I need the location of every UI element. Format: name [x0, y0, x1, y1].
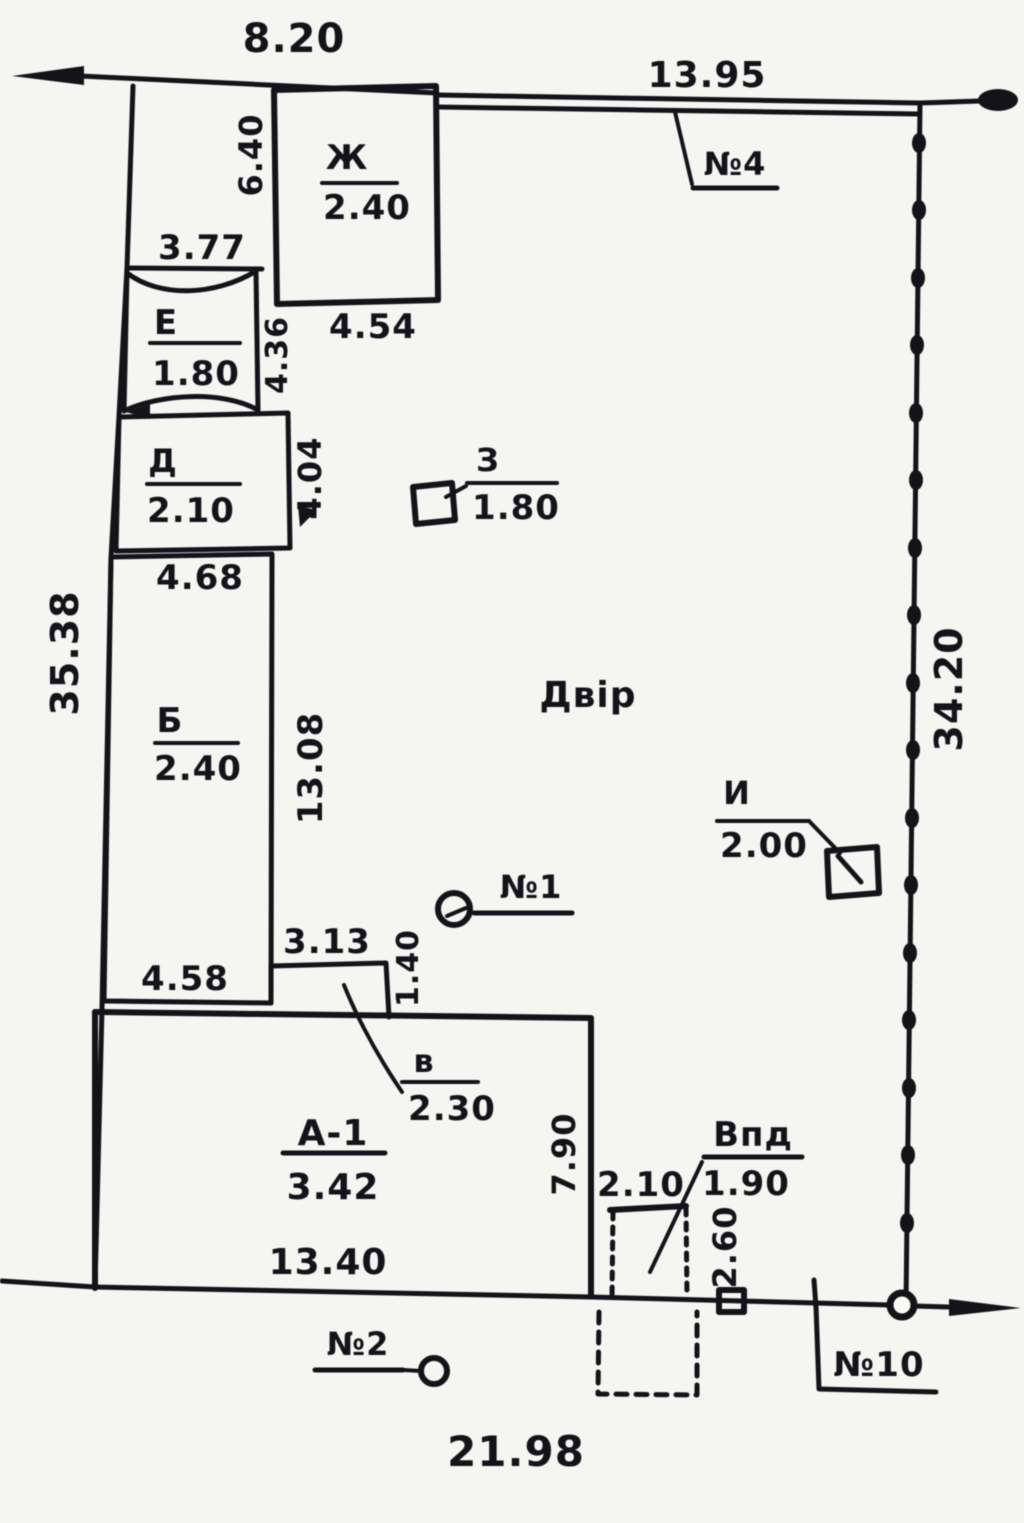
- point-n10: №10: [814, 1280, 936, 1392]
- annex-v-value: 2.30: [408, 1089, 496, 1129]
- dim-v-width: 3.13: [283, 922, 371, 962]
- south-east-stub: [914, 1306, 948, 1307]
- fence-dot: [902, 1010, 916, 1030]
- building-zh: Ж 2.40 4.54: [274, 86, 438, 347]
- fence-dot: [904, 875, 918, 895]
- dim-b-height: 13.08: [291, 712, 331, 825]
- point-n4: №4: [675, 112, 777, 188]
- structure-i-notch: [838, 856, 861, 882]
- annex-v-outline: [271, 963, 389, 1017]
- point-n4-leader: [675, 112, 692, 184]
- point-n2-circle: [421, 1358, 447, 1384]
- fence-dot: [910, 335, 924, 355]
- point-n1: №1: [438, 868, 572, 925]
- west-boundary-line: [95, 86, 133, 1288]
- structure-i-letter: И: [723, 774, 751, 812]
- point-n2: №2: [315, 1325, 447, 1384]
- building-d-letter: Д: [148, 442, 178, 480]
- plot-boundary: [2, 66, 1021, 1317]
- point-n1-label: №1: [500, 868, 563, 906]
- north-east-end-blob: [978, 89, 1018, 111]
- structure-z-value: 1.80: [472, 488, 560, 528]
- dim-a1-width: 13.40: [269, 1242, 388, 1283]
- dim-vpd-height: 2.60: [706, 1206, 744, 1289]
- point-n10-label: №10: [833, 1345, 924, 1385]
- point-n4-label: №4: [704, 145, 767, 183]
- dim-vpd-offset: 2.10: [597, 1165, 685, 1205]
- building-e-letter: Е: [154, 303, 178, 343]
- fence-dot: [900, 1213, 914, 1233]
- dim-d-width: 4.68: [156, 558, 244, 598]
- yard-label: Двір: [540, 675, 637, 716]
- east-fence-dots: [900, 133, 926, 1233]
- building-zh-value: 2.40: [323, 188, 411, 228]
- dim-top: 8.20: [243, 16, 346, 62]
- vpd-east-edge: [686, 1208, 687, 1296]
- structure-z-square: [413, 483, 455, 524]
- fence-dot: [901, 1145, 915, 1165]
- site-plan-drawing: 8.20 13.95 35.38 34.20 21.98 13.40 6.40 …: [0, 0, 1024, 1523]
- dim-bottom: 21.98: [447, 1427, 585, 1476]
- dim-e-height: 4.36: [260, 316, 295, 394]
- fence-dot: [911, 268, 925, 288]
- building-d: Д 2.10 4.04 4.68: [116, 404, 329, 598]
- fence-dot: [909, 470, 923, 490]
- south-east-corner-ring: [890, 1293, 914, 1317]
- fence-dot: [912, 133, 926, 153]
- fence-dot: [909, 403, 923, 423]
- vpd-west-edge: [612, 1212, 613, 1296]
- structure-vpd: 2.10 Впд 1.90 2.60: [597, 1115, 802, 1395]
- structure-i-value: 2.00: [720, 826, 808, 866]
- south-boundary-line: [2, 1281, 890, 1305]
- north-boundary-line-east-b: [437, 107, 918, 114]
- dim-e-width: 3.77: [158, 228, 246, 268]
- north-boundary-line-east-a: [437, 95, 920, 103]
- building-zh-letter: Ж: [326, 138, 369, 178]
- dim-d-height: 4.04: [291, 437, 329, 520]
- compartment-bottom-line: [130, 268, 262, 269]
- structure-i: И 2.00: [717, 774, 879, 897]
- fence-dot: [906, 740, 920, 760]
- dim-v-height: 1.40: [391, 929, 426, 1007]
- dim-left: 35.38: [43, 590, 87, 715]
- structure-z: З 1.80: [413, 441, 560, 528]
- vpd-dashed-extension: [598, 1312, 697, 1395]
- structure-vpd-letter: Впд: [713, 1115, 793, 1155]
- scanned-site-plan: 8.20 13.95 35.38 34.20 21.98 13.40 6.40 …: [0, 0, 1024, 1523]
- annex-v: 3.13 1.40 в 2.30: [271, 922, 496, 1129]
- building-e-value: 1.80: [152, 354, 240, 394]
- dim-right: 34.20: [927, 626, 971, 751]
- structure-vpd-value: 1.90: [702, 1164, 790, 1204]
- fence-dot: [903, 943, 917, 963]
- fence-dot: [905, 808, 919, 828]
- building-d-value: 2.10: [147, 491, 235, 531]
- building-a1-letter: А-1: [298, 1113, 369, 1154]
- building-a1-value: 3.42: [287, 1167, 380, 1208]
- west-arrowhead: [12, 66, 84, 85]
- building-e: Е 1.80 4.36: [124, 271, 295, 411]
- vpd-top-edge: [610, 1206, 686, 1210]
- fence-dot: [908, 538, 922, 558]
- courtyard-compartment: 6.40 3.77: [130, 114, 270, 269]
- fence-dot: [906, 673, 920, 693]
- structure-z-letter: З: [476, 441, 500, 479]
- point-n1-tick: [447, 908, 466, 916]
- fence-dot: [902, 1078, 916, 1098]
- dim-courtyard-height: 6.40: [232, 114, 270, 197]
- dim-b-width: 4.58: [141, 959, 229, 999]
- annex-v-letter: в: [413, 1042, 434, 1080]
- dim-zh-width: 4.54: [329, 307, 417, 347]
- building-b-letter: Б: [157, 701, 184, 741]
- north-east-stub: [920, 101, 980, 103]
- fence-dot: [912, 200, 926, 220]
- dim-a1-height: 7.90: [545, 1113, 583, 1196]
- building-b-value: 2.40: [154, 749, 242, 789]
- point-n2-label: №2: [327, 1325, 390, 1363]
- fence-dot: [907, 605, 921, 625]
- dim-top-right: 13.95: [648, 55, 767, 96]
- east-arrowhead: [949, 1299, 1021, 1316]
